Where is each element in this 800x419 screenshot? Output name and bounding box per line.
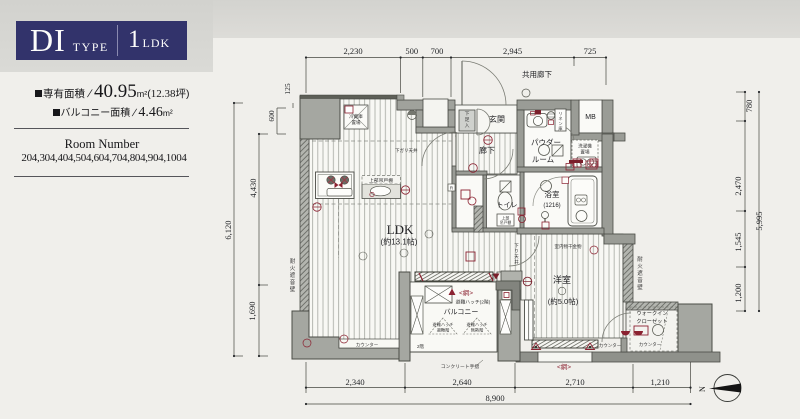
svg-text:室内物干金物: 室内物干金物 <box>555 243 582 250</box>
svg-text:1,690: 1,690 <box>247 301 257 320</box>
svg-text:パウダー: パウダー <box>531 137 561 147</box>
svg-text:洗濯機: 洗濯機 <box>578 143 592 150</box>
svg-text:5,995: 5,995 <box>754 211 764 230</box>
svg-text:庫: 庫 <box>558 125 562 132</box>
svg-text:遮: 遮 <box>290 271 296 279</box>
svg-text:725: 725 <box>584 46 597 56</box>
svg-text:(1216): (1216) <box>543 203 560 209</box>
svg-text:冷蔵庫: 冷蔵庫 <box>349 113 363 120</box>
svg-text:下: 下 <box>465 111 470 117</box>
svg-text:カウンター: カウンター <box>639 341 662 348</box>
svg-text:125: 125 <box>283 83 292 95</box>
svg-text:600: 600 <box>267 110 276 122</box>
svg-text:壁: 壁 <box>290 285 296 293</box>
svg-text:火: 火 <box>637 264 643 270</box>
svg-text:<網>: <網> <box>459 288 473 297</box>
svg-text:2,640: 2,640 <box>452 377 471 387</box>
svg-text:クローゼット: クローゼット <box>636 317 667 325</box>
svg-text:玄関: 玄関 <box>489 114 505 124</box>
svg-text:足: 足 <box>465 117 470 123</box>
svg-text:下ガリ天井: 下ガリ天井 <box>395 147 418 154</box>
svg-text:洋室: 洋室 <box>553 274 571 285</box>
svg-text:カウンター: カウンター <box>599 342 622 349</box>
svg-text:遮: 遮 <box>637 269 643 277</box>
svg-text:2,945: 2,945 <box>503 46 522 56</box>
svg-text:2,710: 2,710 <box>565 377 584 387</box>
svg-text:1,210: 1,210 <box>650 377 669 387</box>
svg-text:バルコニー: バルコニー <box>444 308 479 316</box>
svg-text:ウォークイン: ウォークイン <box>636 309 667 317</box>
svg-text:避難階: 避難階 <box>437 327 450 334</box>
svg-text:コンクリート手摺: コンクリート手摺 <box>441 363 480 370</box>
svg-text:トイレ: トイレ <box>497 202 518 209</box>
svg-text:2,340: 2,340 <box>345 377 364 387</box>
svg-text:(約5.0帖): (約5.0帖) <box>548 296 579 306</box>
svg-text:1,200: 1,200 <box>733 283 743 302</box>
svg-text:4,430: 4,430 <box>248 178 258 197</box>
svg-text:井: 井 <box>514 259 519 266</box>
svg-text:MB: MB <box>585 114 596 121</box>
svg-text:780: 780 <box>744 100 754 113</box>
svg-text:廊下: 廊下 <box>479 145 495 155</box>
svg-text:耐: 耐 <box>637 255 643 263</box>
svg-text:ルーム: ルーム <box>532 155 554 164</box>
svg-text:吊戸棚: 吊戸棚 <box>500 220 512 225</box>
svg-text:無熱階: 無熱階 <box>471 327 484 334</box>
svg-text:耐: 耐 <box>290 257 296 265</box>
svg-text:700: 700 <box>431 46 444 56</box>
svg-text:壁: 壁 <box>637 283 643 291</box>
svg-text:音: 音 <box>637 276 643 284</box>
svg-text:置場: 置場 <box>580 149 590 156</box>
svg-text:浴室: 浴室 <box>545 189 560 199</box>
svg-text:音: 音 <box>290 278 296 286</box>
svg-text:1,545: 1,545 <box>733 232 743 251</box>
svg-text:カウンター: カウンター <box>356 342 379 349</box>
svg-text:(約13.1帖): (約13.1帖) <box>381 237 418 247</box>
svg-text:共用廊下: 共用廊下 <box>522 69 552 79</box>
svg-text:2,470: 2,470 <box>733 176 743 195</box>
svg-text:6,120: 6,120 <box>223 220 233 239</box>
svg-text:<網>: <網> <box>557 362 571 371</box>
svg-text:入: 入 <box>465 123 470 129</box>
svg-text:2階: 2階 <box>417 343 425 350</box>
svg-text:8,900: 8,900 <box>485 393 504 403</box>
svg-text:置場: 置場 <box>352 119 361 126</box>
svg-text:火: 火 <box>290 266 296 272</box>
svg-text:LDK: LDK <box>387 222 414 237</box>
svg-text:N: N <box>698 386 707 392</box>
svg-text:上部: 上部 <box>502 216 510 221</box>
svg-text:上部吊戸棚: 上部吊戸棚 <box>369 177 393 184</box>
svg-text:500: 500 <box>405 46 418 56</box>
svg-text:2,230: 2,230 <box>343 46 362 56</box>
svg-text:避難ハッチ(2階): 避難ハッチ(2階) <box>456 299 491 306</box>
